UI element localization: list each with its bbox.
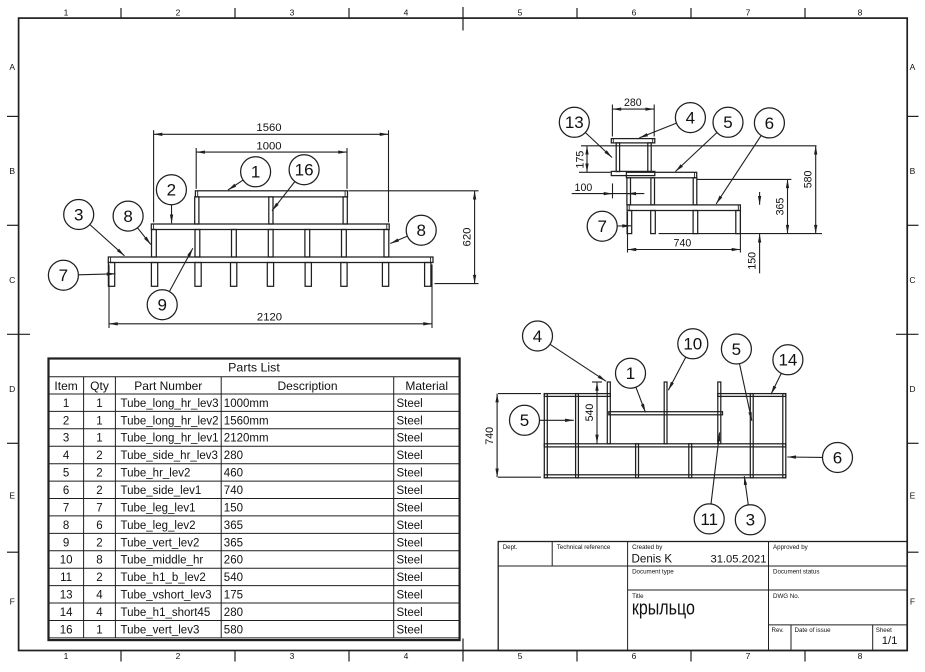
svg-text:4: 4 — [63, 450, 70, 462]
svg-text:1/1: 1/1 — [882, 635, 898, 647]
svg-text:Tube_side_hr_lev3: Tube_side_hr_lev3 — [121, 450, 218, 462]
svg-text:Part Number: Part Number — [134, 379, 202, 393]
svg-text:7: 7 — [59, 266, 68, 285]
svg-text:7: 7 — [746, 8, 751, 18]
svg-text:6: 6 — [63, 485, 69, 497]
svg-text:365: 365 — [224, 520, 243, 532]
svg-text:A: A — [910, 62, 916, 72]
svg-text:365: 365 — [224, 537, 243, 549]
svg-text:8: 8 — [123, 207, 132, 226]
svg-text:1560mm: 1560mm — [224, 415, 269, 427]
svg-text:9: 9 — [157, 296, 166, 315]
svg-text:Tube_vert_lev3: Tube_vert_lev3 — [121, 624, 200, 636]
svg-text:740: 740 — [224, 485, 243, 497]
svg-text:A: A — [9, 62, 15, 72]
svg-text:1: 1 — [96, 415, 102, 427]
svg-text:14: 14 — [60, 607, 73, 619]
svg-text:Tube_long_hr_lev3: Tube_long_hr_lev3 — [121, 398, 219, 410]
svg-text:540: 540 — [584, 404, 596, 422]
svg-text:14: 14 — [778, 351, 797, 370]
svg-text:100: 100 — [575, 182, 593, 194]
svg-text:10: 10 — [683, 335, 702, 354]
svg-text:D: D — [909, 384, 915, 394]
svg-text:31.05.2021: 31.05.2021 — [711, 554, 767, 566]
svg-text:5: 5 — [520, 411, 529, 430]
svg-text:Tube_hr_lev2: Tube_hr_lev2 — [121, 468, 191, 480]
svg-text:8: 8 — [63, 520, 69, 532]
svg-text:7: 7 — [96, 502, 102, 514]
svg-text:6: 6 — [833, 448, 842, 467]
svg-text:3: 3 — [63, 433, 69, 445]
svg-text:5: 5 — [732, 340, 741, 359]
svg-text:Item: Item — [54, 379, 77, 393]
svg-text:2: 2 — [96, 468, 102, 480]
svg-text:740: 740 — [674, 238, 692, 250]
svg-text:580: 580 — [224, 624, 243, 636]
svg-text:540: 540 — [224, 572, 243, 584]
svg-text:11: 11 — [60, 572, 72, 584]
svg-text:1: 1 — [96, 398, 102, 410]
svg-text:1: 1 — [64, 8, 69, 18]
svg-text:175: 175 — [224, 590, 243, 602]
svg-text:E: E — [910, 491, 916, 501]
svg-text:260: 260 — [224, 555, 243, 567]
svg-text:16: 16 — [60, 624, 73, 636]
svg-text:3: 3 — [746, 511, 755, 530]
svg-text:7: 7 — [746, 651, 751, 661]
svg-text:Material: Material — [405, 379, 448, 393]
svg-text:4: 4 — [404, 651, 409, 661]
svg-text:6: 6 — [96, 520, 102, 532]
svg-text:Steel: Steel — [397, 607, 423, 619]
svg-text:E: E — [9, 491, 15, 501]
svg-text:крыльцо: крыльцо — [632, 598, 695, 620]
svg-text:16: 16 — [295, 161, 314, 180]
svg-text:4: 4 — [96, 607, 103, 619]
svg-text:1: 1 — [96, 433, 102, 445]
svg-text:4: 4 — [96, 590, 103, 602]
svg-text:11: 11 — [700, 510, 718, 529]
svg-text:Document type: Document type — [632, 569, 674, 576]
svg-text:5: 5 — [518, 651, 523, 661]
svg-text:C: C — [9, 275, 15, 285]
svg-text:460: 460 — [224, 468, 243, 480]
svg-text:280: 280 — [224, 607, 243, 619]
svg-text:Approved by: Approved by — [773, 544, 809, 551]
svg-text:1: 1 — [64, 651, 69, 661]
svg-text:1: 1 — [96, 624, 102, 636]
svg-text:Steel: Steel — [397, 624, 423, 636]
svg-text:7: 7 — [597, 217, 606, 236]
svg-text:580: 580 — [803, 170, 815, 188]
svg-text:Steel: Steel — [397, 468, 423, 480]
svg-text:3: 3 — [74, 205, 83, 224]
svg-text:2: 2 — [167, 181, 176, 200]
svg-text:3: 3 — [290, 651, 295, 661]
svg-text:F: F — [910, 596, 915, 606]
svg-text:Tube_leg_lev2: Tube_leg_lev2 — [121, 520, 196, 532]
svg-text:5: 5 — [518, 8, 523, 18]
svg-text:Steel: Steel — [397, 520, 423, 532]
svg-text:Description: Description — [277, 379, 337, 393]
svg-text:Steel: Steel — [397, 555, 423, 567]
svg-text:Dept.: Dept. — [503, 544, 518, 551]
svg-text:Steel: Steel — [397, 450, 423, 462]
svg-text:Steel: Steel — [397, 590, 423, 602]
svg-text:Tube_middle_hr: Tube_middle_hr — [121, 555, 204, 567]
svg-text:8: 8 — [416, 221, 425, 240]
svg-text:365: 365 — [774, 198, 786, 216]
svg-text:5: 5 — [63, 468, 69, 480]
svg-text:Sheet: Sheet — [876, 627, 892, 634]
svg-text:150: 150 — [224, 502, 243, 514]
svg-text:3: 3 — [290, 8, 295, 18]
svg-text:8: 8 — [858, 8, 863, 18]
svg-text:Tube_h1_b_lev2: Tube_h1_b_lev2 — [121, 572, 206, 584]
svg-text:2120: 2120 — [257, 312, 282, 324]
svg-text:620: 620 — [461, 228, 473, 247]
svg-text:2: 2 — [96, 450, 102, 462]
svg-text:1000mm: 1000mm — [224, 398, 269, 410]
svg-text:8: 8 — [96, 555, 102, 567]
svg-text:10: 10 — [60, 555, 73, 567]
svg-text:Steel: Steel — [397, 537, 423, 549]
svg-text:Tube_leg_lev1: Tube_leg_lev1 — [121, 502, 196, 514]
svg-text:Tube_side_lev1: Tube_side_lev1 — [121, 485, 202, 497]
svg-text:8: 8 — [858, 651, 863, 661]
svg-text:1: 1 — [626, 364, 635, 383]
svg-text:1: 1 — [63, 398, 69, 410]
svg-text:Tube_long_hr_lev1: Tube_long_hr_lev1 — [121, 433, 219, 445]
svg-text:Rev.: Rev. — [772, 627, 785, 634]
svg-text:175: 175 — [575, 151, 587, 169]
svg-text:6: 6 — [632, 651, 637, 661]
svg-text:C: C — [909, 275, 915, 285]
svg-text:280: 280 — [624, 97, 642, 109]
svg-text:Tube_long_hr_lev2: Tube_long_hr_lev2 — [121, 415, 219, 427]
svg-text:Steel: Steel — [397, 433, 423, 445]
svg-text:4: 4 — [404, 8, 409, 18]
svg-text:4: 4 — [686, 109, 695, 128]
svg-text:2: 2 — [96, 485, 102, 497]
svg-text:DWG No.: DWG No. — [773, 593, 800, 600]
svg-text:F: F — [10, 596, 15, 606]
svg-text:2: 2 — [96, 572, 102, 584]
svg-text:13: 13 — [60, 590, 73, 602]
svg-text:1: 1 — [251, 163, 260, 182]
svg-text:150: 150 — [746, 252, 758, 270]
svg-text:280: 280 — [224, 450, 243, 462]
svg-text:Technical reference: Technical reference — [557, 544, 611, 551]
svg-text:D: D — [9, 384, 15, 394]
svg-text:6: 6 — [632, 8, 637, 18]
svg-text:Denis K: Denis K — [632, 553, 673, 566]
svg-text:B: B — [9, 166, 15, 176]
svg-text:Steel: Steel — [397, 398, 423, 410]
svg-text:Qty: Qty — [90, 379, 109, 393]
svg-text:Steel: Steel — [397, 502, 423, 514]
svg-text:Tube_vert_lev2: Tube_vert_lev2 — [121, 537, 200, 549]
svg-text:2: 2 — [176, 651, 181, 661]
svg-text:2: 2 — [176, 8, 181, 18]
svg-text:Tube_h1_short45: Tube_h1_short45 — [121, 607, 211, 619]
svg-text:Created by: Created by — [632, 544, 663, 551]
svg-text:13: 13 — [565, 113, 584, 132]
svg-text:7: 7 — [63, 502, 69, 514]
svg-text:Document status: Document status — [773, 569, 819, 576]
svg-text:4: 4 — [533, 327, 542, 346]
svg-text:Steel: Steel — [397, 572, 423, 584]
svg-text:B: B — [910, 166, 916, 176]
svg-text:Tube_vshort_lev3: Tube_vshort_lev3 — [121, 590, 212, 602]
svg-text:Parts List: Parts List — [228, 361, 280, 375]
svg-text:740: 740 — [484, 427, 496, 445]
svg-text:1560: 1560 — [256, 122, 281, 134]
svg-text:2120mm: 2120mm — [224, 433, 269, 445]
svg-text:Steel: Steel — [397, 415, 423, 427]
svg-text:Steel: Steel — [397, 485, 423, 497]
svg-text:9: 9 — [63, 537, 69, 549]
svg-text:2: 2 — [63, 415, 69, 427]
svg-text:2: 2 — [96, 537, 102, 549]
svg-text:1000: 1000 — [256, 140, 281, 152]
svg-text:5: 5 — [723, 113, 732, 132]
svg-text:Date of issue: Date of issue — [795, 627, 832, 634]
svg-text:6: 6 — [765, 114, 774, 133]
